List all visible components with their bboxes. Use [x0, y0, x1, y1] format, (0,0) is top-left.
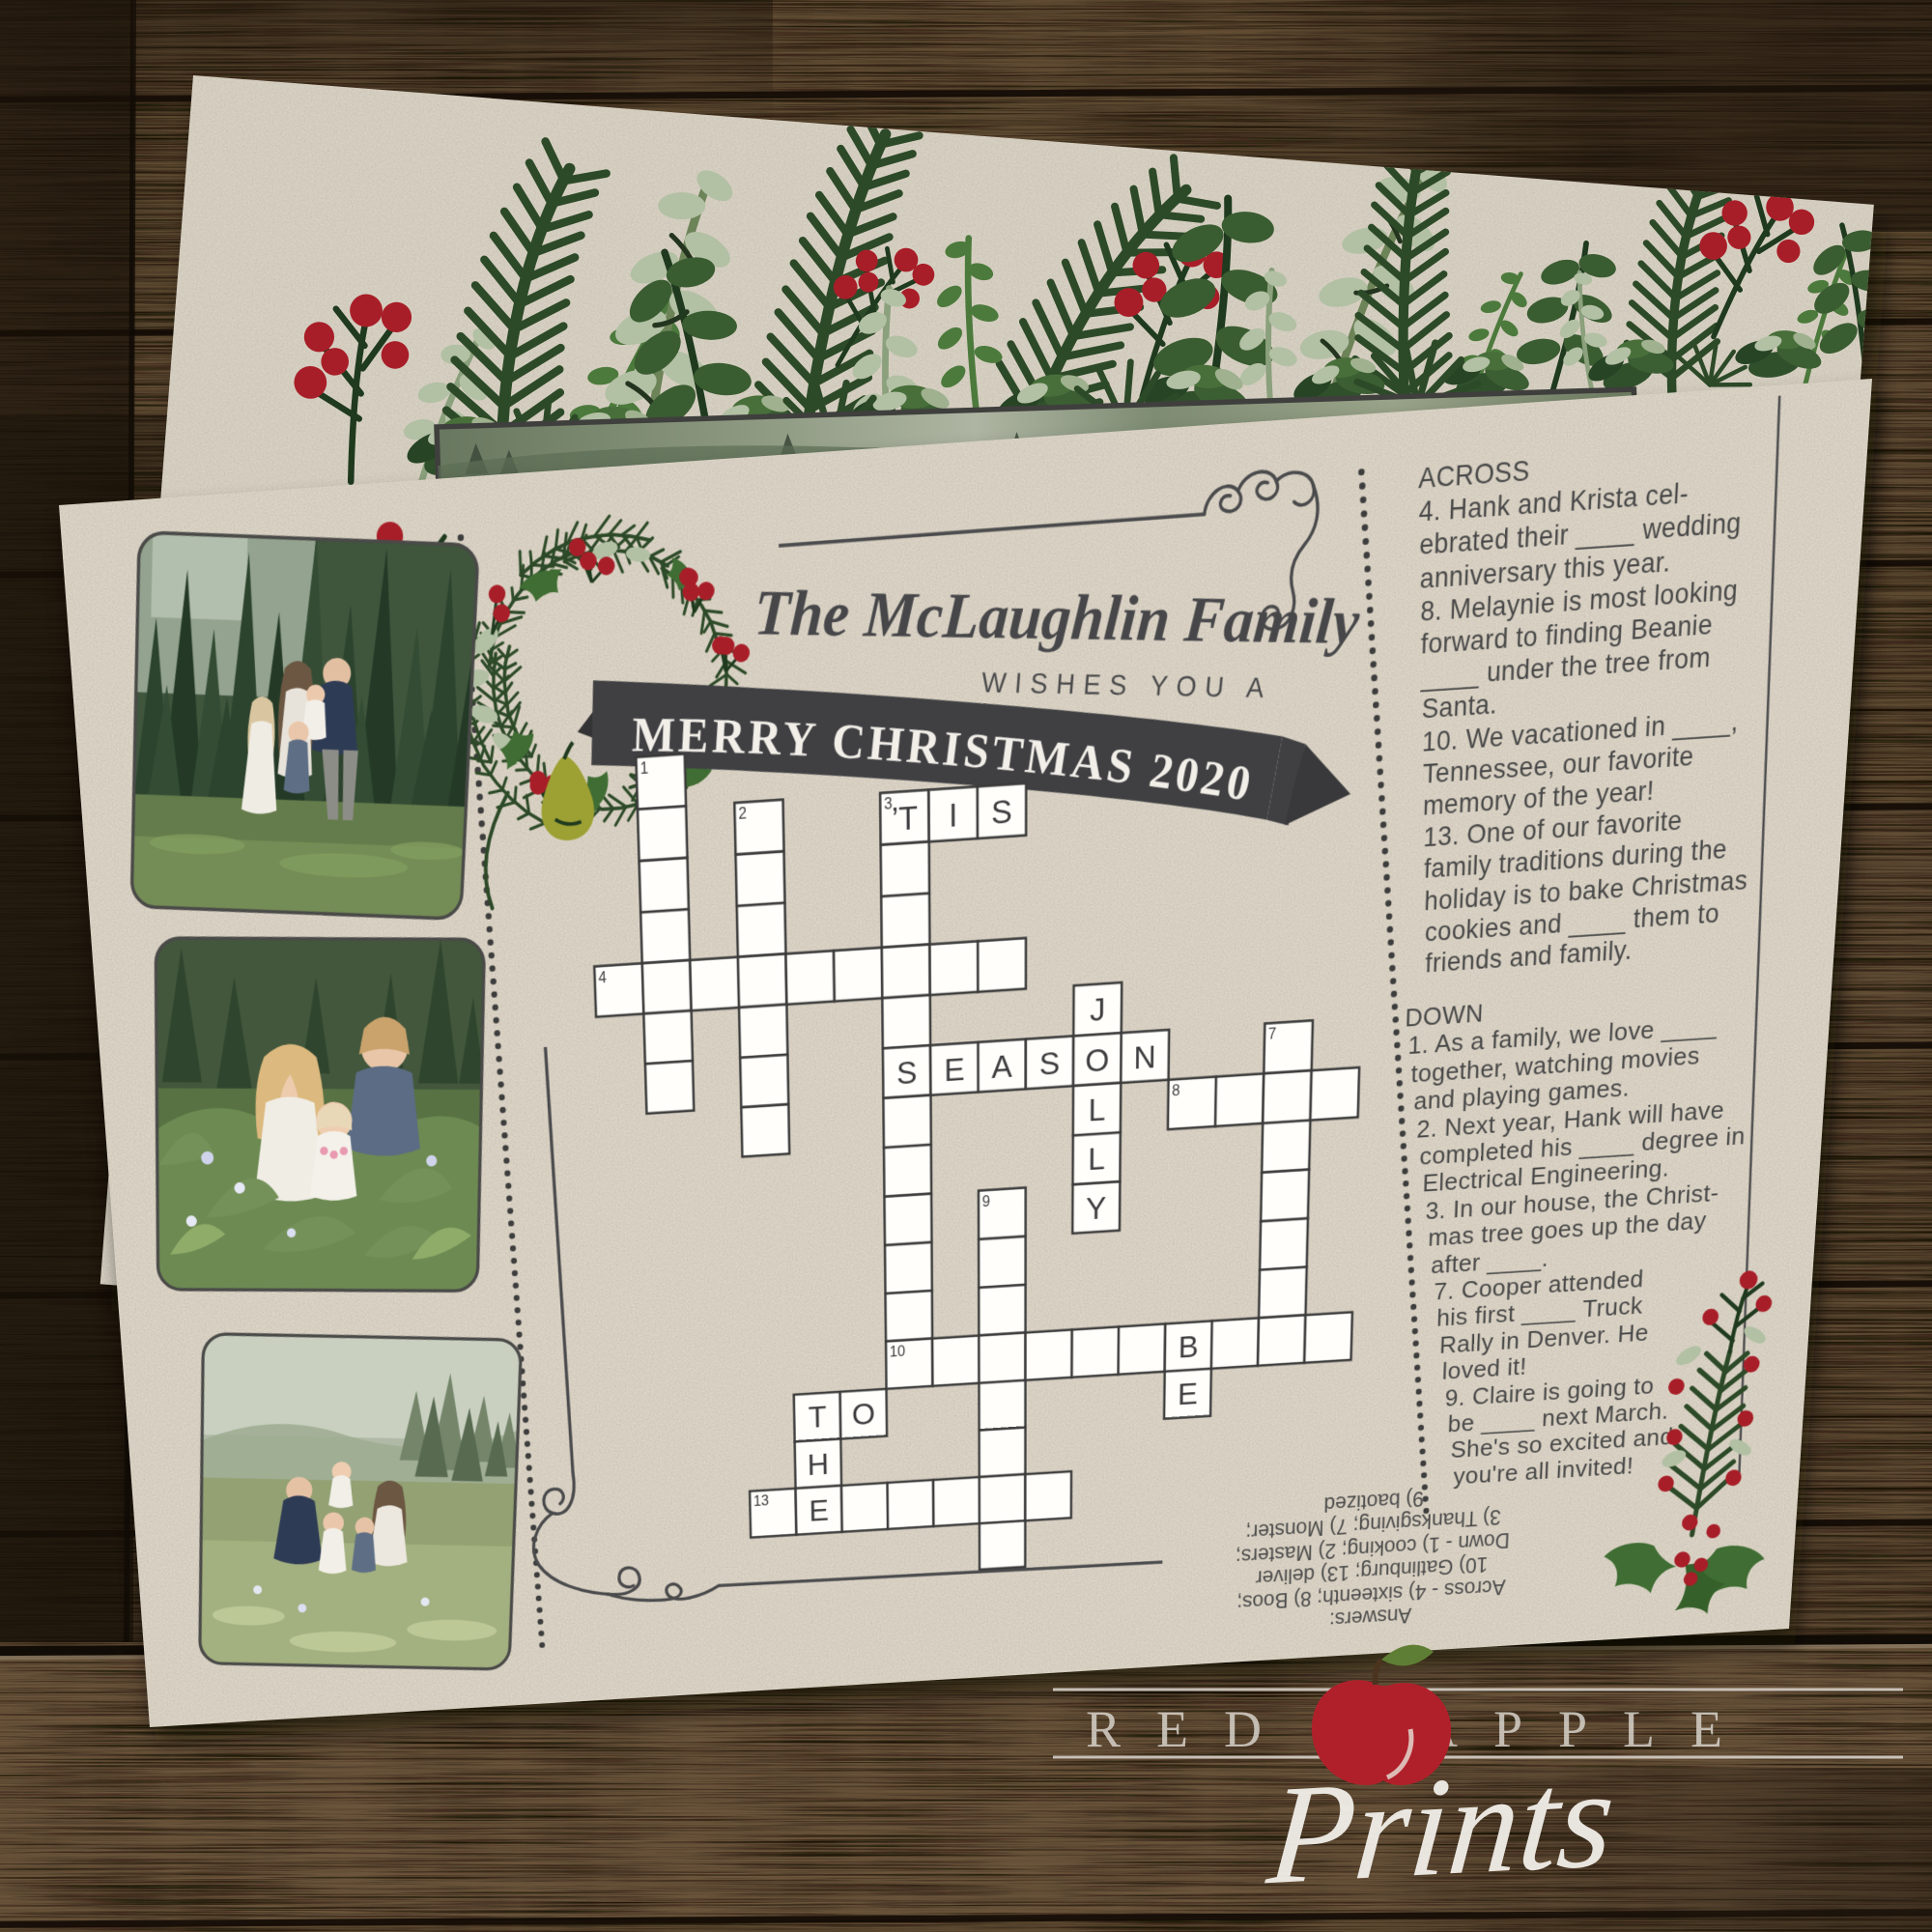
svg-text:RED: RED — [1086, 1700, 1297, 1758]
svg-text:Prints: Prints — [1262, 1739, 1621, 1915]
